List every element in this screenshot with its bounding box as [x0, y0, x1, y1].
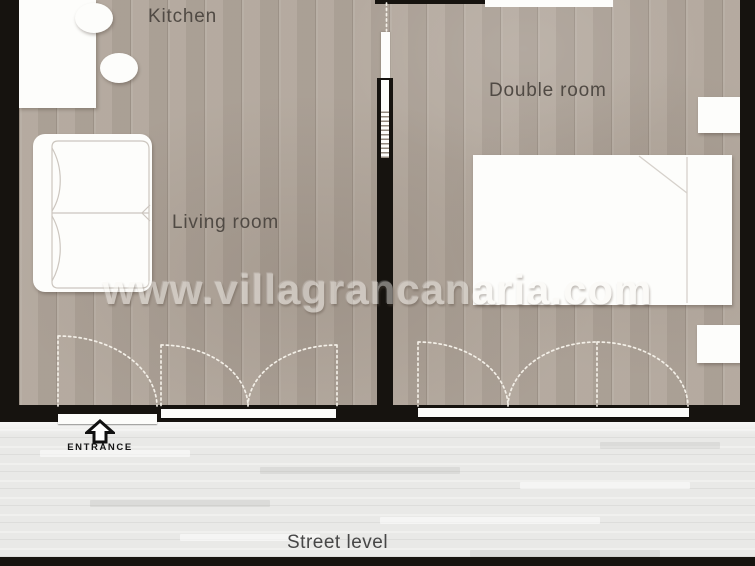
pavement-streak — [380, 517, 600, 524]
kitchen-sink — [75, 3, 113, 33]
wall-top — [375, 0, 485, 4]
entrance-arrow-icon — [85, 419, 115, 444]
kitchen-label: Kitchen — [148, 6, 217, 28]
living-room-french-door-sill — [161, 409, 336, 418]
wall-right — [740, 0, 755, 422]
partition-door-channel — [381, 80, 389, 158]
living-room-label: Living room — [172, 212, 279, 234]
nightstand-top — [698, 97, 743, 133]
kitchen-stool — [100, 53, 138, 83]
pavement-streak — [90, 500, 270, 507]
double-room-french-door-sill — [418, 408, 689, 417]
partition-door-leaf — [381, 32, 390, 80]
wall-left — [0, 0, 19, 422]
double-room-label: Double room — [489, 80, 607, 102]
pavement-streak — [470, 550, 660, 557]
bottom-border-bar — [0, 557, 755, 566]
wardrobe — [485, 0, 613, 7]
pavement-streak — [520, 482, 690, 489]
floor-plan: Kitchen Living room Double room ENTRANCE… — [0, 0, 755, 566]
pavement-streak — [260, 467, 460, 474]
watermark: www.villagrancanaria.com — [103, 266, 653, 314]
nightstand-bottom — [697, 325, 741, 363]
pavement-streak — [600, 442, 720, 449]
entrance-label: ENTRANCE — [55, 442, 145, 453]
street-level-label: Street level — [287, 532, 388, 554]
